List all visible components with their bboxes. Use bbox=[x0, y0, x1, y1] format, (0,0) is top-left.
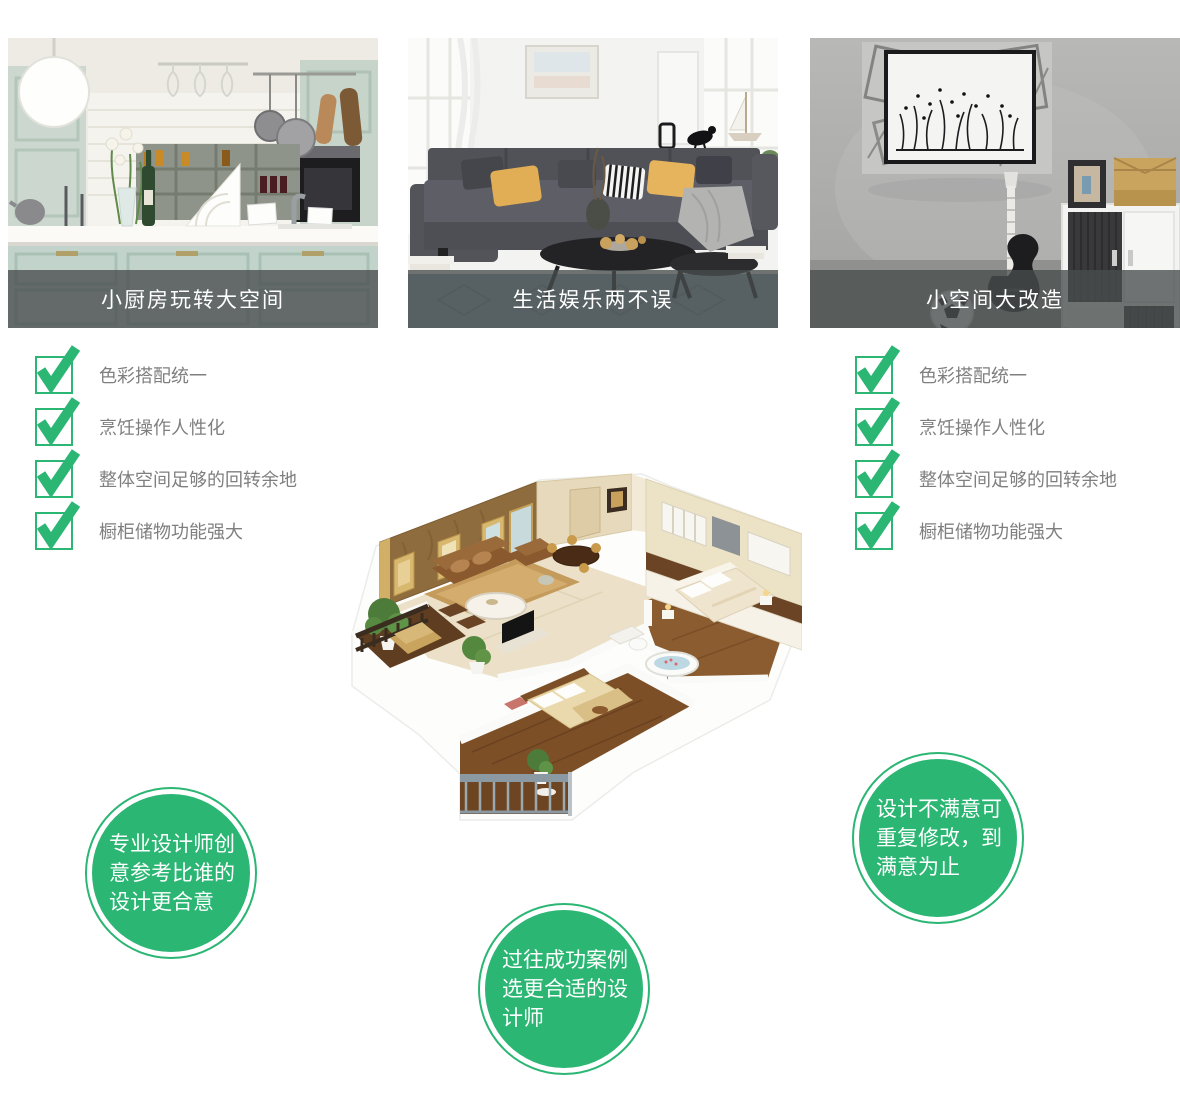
bubble-text: 过往成功案例选更合适的设计师 bbox=[502, 946, 631, 1033]
checklist-item-label: 整体空间足够的回转余地 bbox=[99, 466, 297, 492]
bubble-text: 专业设计师创意参考比谁的设计更合意 bbox=[109, 830, 238, 917]
card-caption-bar: 小厨房玩转大空间 bbox=[8, 270, 378, 328]
abstract-art bbox=[862, 42, 1052, 174]
checklist-right-row-3: 整体空间足够的回转余地 bbox=[855, 460, 1117, 498]
checklist-item-label: 烹饪操作人性化 bbox=[99, 414, 225, 440]
page: 小厨房玩转大空间 bbox=[0, 0, 1180, 1095]
isometric-apartment-floorplan bbox=[332, 472, 802, 832]
card-caption-bar: 小空间大改造 bbox=[810, 270, 1180, 328]
checklist-right-row-1: 色彩搭配统一 bbox=[855, 356, 1027, 394]
card-caption: 小厨房玩转大空间 bbox=[101, 284, 285, 314]
checkbox-checked-icon bbox=[35, 356, 73, 394]
checklist-item-label: 色彩搭配统一 bbox=[919, 362, 1027, 388]
card-caption-bar: 生活娱乐两不误 bbox=[408, 270, 778, 328]
checkbox-checked-icon bbox=[855, 356, 893, 394]
bubble-free-revision: 设计不满意可重复修改，到满意为止 bbox=[852, 752, 1024, 924]
bubble-designer-creativity: 专业设计师创意参考比谁的设计更合意 bbox=[85, 787, 257, 959]
card-caption: 生活娱乐两不误 bbox=[513, 284, 674, 314]
checklist-item-label: 橱柜储物功能强大 bbox=[99, 518, 243, 544]
checkbox-checked-icon bbox=[855, 460, 893, 498]
wall-art bbox=[526, 46, 598, 98]
checklist-left-row-2: 烹饪操作人性化 bbox=[35, 408, 225, 446]
checkbox-checked-icon bbox=[855, 408, 893, 446]
checklist-left-row-1: 色彩搭配统一 bbox=[35, 356, 207, 394]
checklist-item-label: 烹饪操作人性化 bbox=[919, 414, 1045, 440]
showcase-card-small-space[interactable]: 小空间大改造 bbox=[810, 38, 1180, 328]
checklist-right-row-4: 橱柜储物功能强大 bbox=[855, 512, 1063, 550]
bubble-text: 设计不满意可重复修改，到满意为止 bbox=[876, 795, 1005, 882]
checklist-left-row-3: 整体空间足够的回转余地 bbox=[35, 460, 297, 498]
photo-frame bbox=[1068, 160, 1106, 208]
storage-box bbox=[1114, 158, 1176, 206]
checklist-left-row-4: 橱柜储物功能强大 bbox=[35, 512, 243, 550]
checklist-right-row-2: 烹饪操作人性化 bbox=[855, 408, 1045, 446]
checkbox-checked-icon bbox=[35, 512, 73, 550]
bubble-success-cases: 过往成功案例选更合适的设计师 bbox=[478, 903, 650, 1075]
checklist-item-label: 整体空间足够的回转余地 bbox=[919, 466, 1117, 492]
showcase-card-living-room[interactable]: 生活娱乐两不误 bbox=[408, 38, 778, 328]
checklist-item-label: 橱柜储物功能强大 bbox=[919, 518, 1063, 544]
checkbox-checked-icon bbox=[35, 408, 73, 446]
card-caption: 小空间大改造 bbox=[926, 284, 1064, 314]
checklist-item-label: 色彩搭配统一 bbox=[99, 362, 207, 388]
checkbox-checked-icon bbox=[35, 460, 73, 498]
showcase-card-kitchen[interactable]: 小厨房玩转大空间 bbox=[8, 38, 378, 328]
checkbox-checked-icon bbox=[855, 512, 893, 550]
